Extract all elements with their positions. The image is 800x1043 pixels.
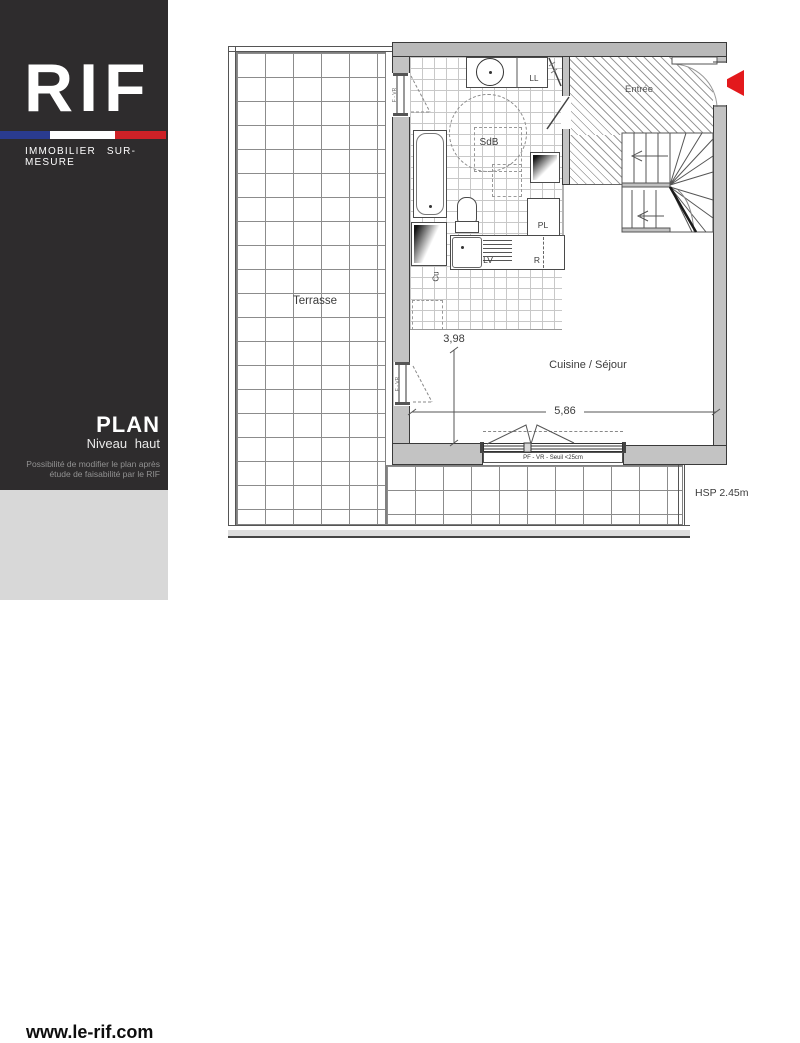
- closet-pl: [527, 198, 560, 238]
- website-text: www.le-rif.com: [26, 1022, 166, 1043]
- shower-left-slope-shading: [414, 225, 444, 263]
- wall-bottom-left: [392, 443, 483, 465]
- washing-machine-label: LL: [524, 74, 544, 83]
- terrace-label: Terrasse: [270, 295, 360, 307]
- terrace-railing-right: [678, 465, 685, 527]
- bathroom-dashed-zone-2: [492, 164, 522, 197]
- dim-vertical-label: 3,98: [436, 333, 472, 345]
- entry-arrow-icon: [720, 70, 744, 96]
- terrace-railing-bottom: [228, 525, 690, 538]
- terrace-floor-grid: [236, 52, 386, 525]
- entry-hatch-area: [570, 57, 713, 135]
- wall-right: [713, 56, 727, 446]
- kitchen-unit-dashed: [412, 300, 443, 330]
- roller-shutter-box-dashed: [483, 431, 623, 432]
- shower-bathroom-slope-shading: [533, 155, 557, 180]
- sliding-window-band: [483, 443, 623, 452]
- shower-bathroom: [530, 152, 560, 183]
- bathtub-drain: [429, 205, 432, 208]
- entry-hatch-area-lower: [570, 135, 622, 185]
- terrace-railing-left: [228, 46, 236, 525]
- kitchen-unit-label: Cu: [432, 267, 441, 287]
- wall-top: [392, 42, 727, 57]
- window-bathroom-side-label: F - VR: [392, 84, 408, 106]
- bathroom-label: SdB: [469, 137, 509, 148]
- bathtub: [413, 130, 447, 218]
- ceiling-height-label: HSP 2.45m: [695, 487, 775, 499]
- bathtub-inner: [416, 133, 444, 215]
- dim-horizontal-label: 5,86: [547, 405, 583, 417]
- kitchen-sink-drain: [461, 246, 464, 249]
- toilet-bowl: [457, 197, 477, 224]
- fridge-label: R: [529, 255, 545, 265]
- wall-bathroom-entry: [562, 56, 570, 185]
- floor-plan: PF - VR - Seuil <25cm: [0, 0, 800, 600]
- toilet-tank: [455, 221, 479, 233]
- staircase: [622, 133, 713, 232]
- entry-label: Entrée: [613, 84, 665, 95]
- dishwasher-label: LV: [478, 255, 498, 265]
- living-label: Cuisine / Séjour: [538, 359, 638, 371]
- window-living-side-label: F - VR: [395, 373, 411, 395]
- washing-machine-center-dot: [489, 71, 492, 74]
- window-label-box: PF - VR - Seuil <25cm: [483, 452, 623, 463]
- wall-bottom-right: [623, 445, 727, 465]
- terrace-floor-grid-bottom: [386, 465, 683, 525]
- shower-left: [411, 222, 447, 266]
- closet-label: PL: [530, 220, 556, 230]
